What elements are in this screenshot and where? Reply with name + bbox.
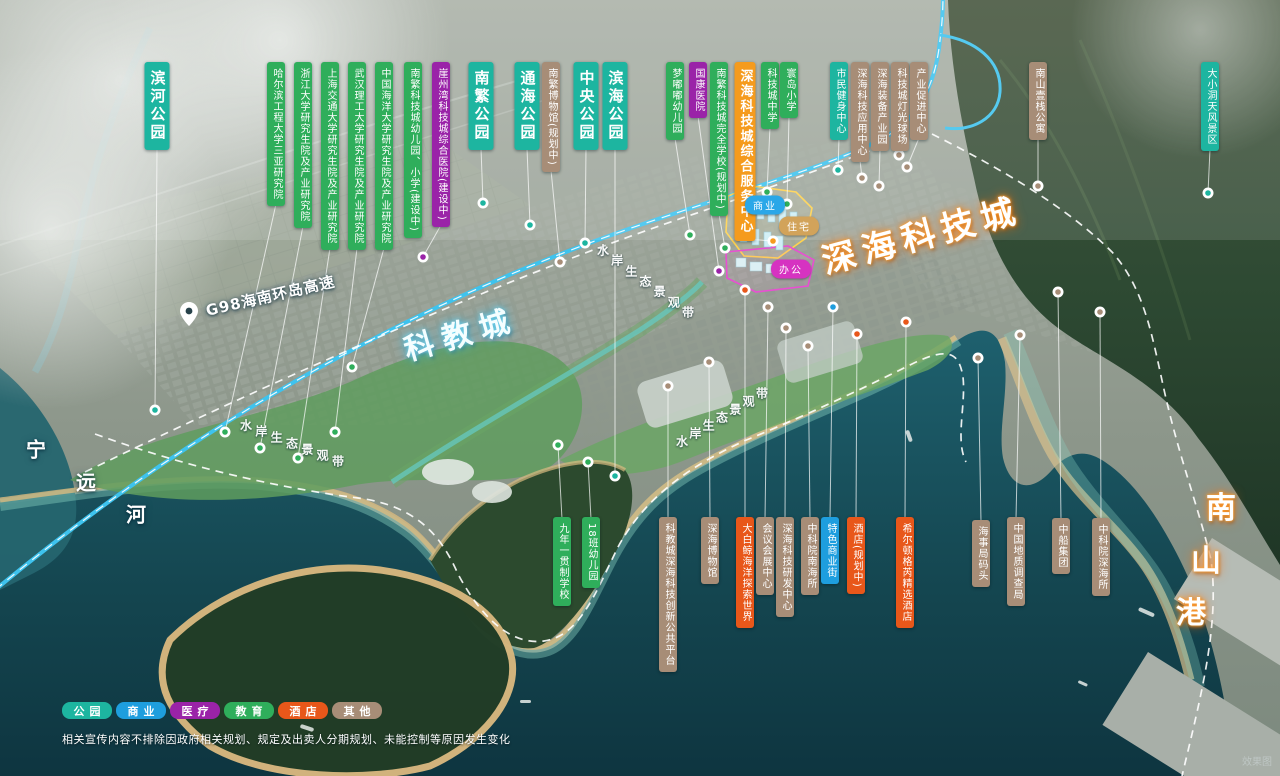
legend-item-medical: 医疗	[170, 702, 220, 719]
zone-tag: 商业	[745, 196, 785, 215]
legend-item-other: 其他	[332, 702, 382, 719]
legend-item-education: 教育	[224, 702, 274, 719]
watermark-text: 效果图	[1242, 753, 1272, 768]
legend-item-park: 公园	[62, 702, 112, 719]
map-poster: 滨河公园哈尔滨工程大学三亚研究院浙江大学研究生院及产业研究院上海交通大学研究生院…	[0, 0, 1280, 776]
legend-item-commercial: 商业	[116, 702, 166, 719]
zone-tag: 住宅	[779, 217, 819, 236]
area-tags-layer: 商业住宅办公	[0, 0, 1280, 776]
legend: 公园商业医疗教育酒店其他	[62, 702, 382, 719]
zone-tag: 办公	[771, 260, 811, 279]
legend-item-hotel: 酒店	[278, 702, 328, 719]
disclaimer-text: 相关宣传内容不排除因政府相关规划、规定及出卖人分期规划、未能控制等原因发生变化	[62, 731, 511, 747]
